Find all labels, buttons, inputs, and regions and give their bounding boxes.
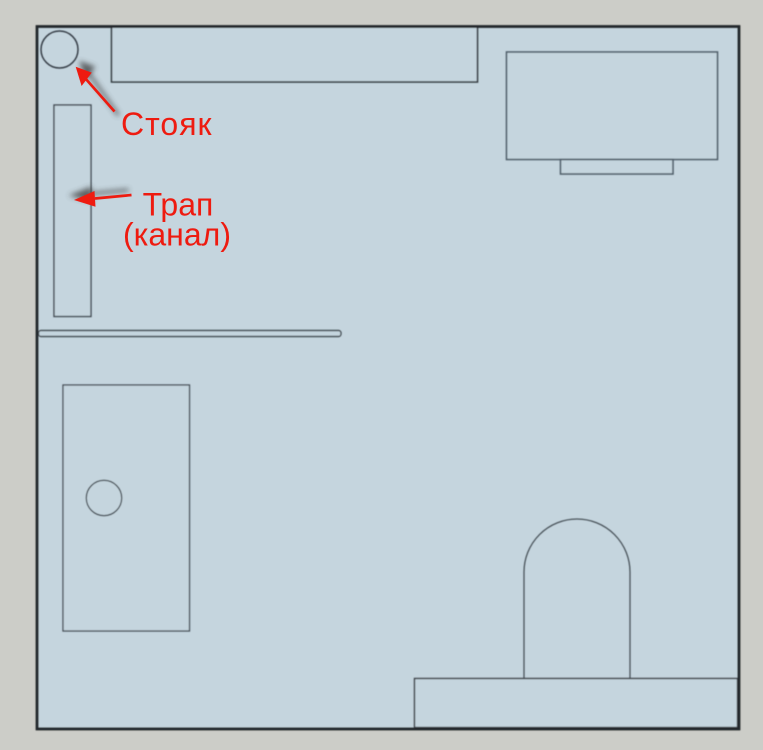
svg-text:(канал): (канал) xyxy=(123,217,231,253)
svg-text:Стояк: Стояк xyxy=(121,106,213,142)
